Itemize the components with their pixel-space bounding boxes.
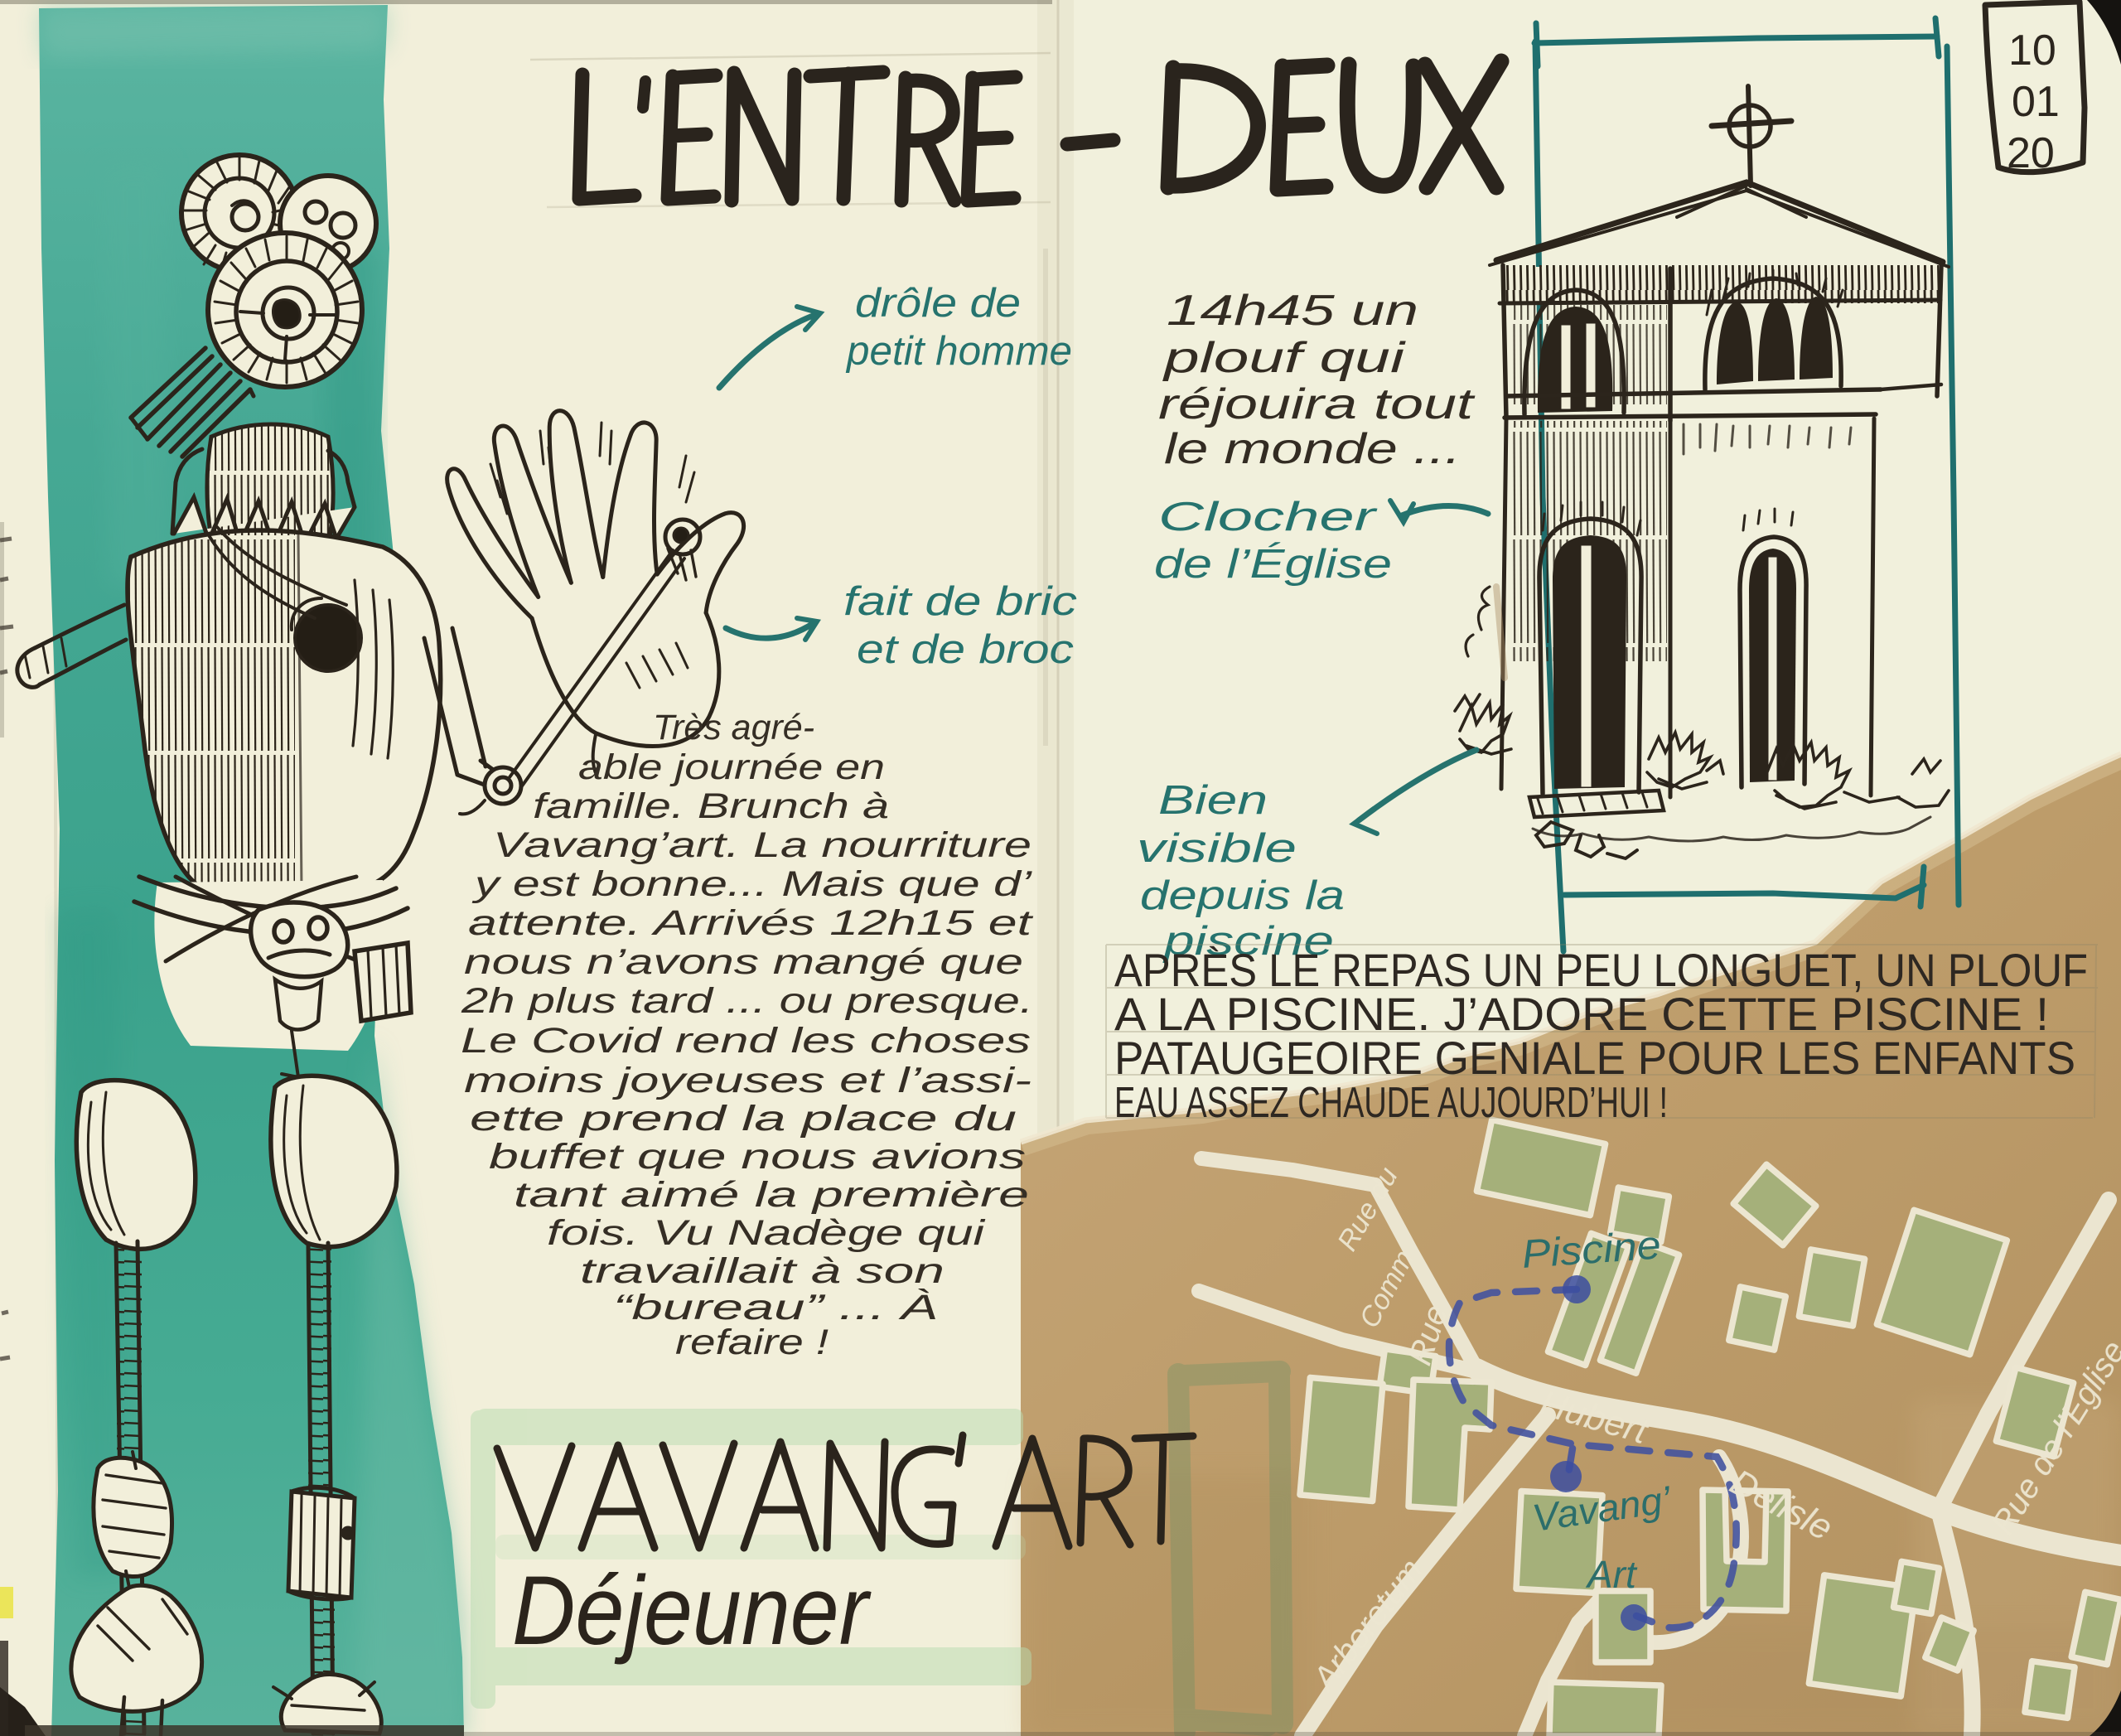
- svg-text:buffet que nous avions: buffet que nous avions: [489, 1137, 1026, 1177]
- svg-text:moins joyeuses et l’assi-: moins joyeuses et l’assi-: [464, 1061, 1032, 1100]
- svg-text:10: 10: [2008, 27, 2056, 75]
- svg-text:nous n’avons mangé que: nous n’avons mangé que: [464, 942, 1023, 982]
- svg-text:20: 20: [2007, 129, 2055, 177]
- svg-text:PATAUGEOIRE GENIALE POUR LES E: PATAUGEOIRE GENIALE POUR LES ENFANTS: [1114, 1032, 2075, 1084]
- svg-text:Déjeuner: Déjeuner: [512, 1556, 872, 1666]
- svg-text:14h45 un: 14h45 un: [1167, 287, 1418, 335]
- svg-text:plouf qui: plouf qui: [1162, 334, 1406, 382]
- svg-text:et de broc: et de broc: [857, 627, 1074, 672]
- svg-text:Vavang’art. La nourriture: Vavang’art. La nourriture: [493, 825, 1032, 865]
- svg-text:attente. Arrivés 12h15 et: attente. Arrivés 12h15 et: [468, 903, 1034, 943]
- svg-text:tant aimé la première: tant aimé la première: [514, 1175, 1029, 1215]
- svg-text:famille. Brunch à: famille. Brunch à: [533, 786, 889, 826]
- svg-text:travaillait à son: travaillait à son: [580, 1251, 945, 1291]
- svg-text:refaire !: refaire !: [675, 1323, 829, 1362]
- svg-text:y est bonne... Mais que d’: y est bonne... Mais que d’: [471, 864, 1033, 904]
- svg-text:petit homme: petit homme: [845, 329, 1072, 374]
- svg-text:fait de bric: fait de bric: [843, 579, 1077, 624]
- svg-text:fois. Vu Nadège qui: fois. Vu Nadège qui: [547, 1213, 986, 1253]
- svg-text:Art: Art: [1585, 1553, 1638, 1596]
- svg-text:visible: visible: [1137, 826, 1297, 871]
- svg-text:Bien: Bien: [1158, 778, 1268, 823]
- svg-text:Très agré-: Très agré-: [653, 708, 814, 747]
- svg-text:le monde ...: le monde ...: [1164, 425, 1461, 473]
- svg-text:depuis la: depuis la: [1140, 873, 1345, 918]
- svg-text:“bureau” ... À: “bureau” ... À: [613, 1288, 938, 1327]
- svg-text:2h plus tard ... ou presque.: 2h plus tard ... ou presque.: [461, 981, 1033, 1021]
- svg-text:01: 01: [2012, 78, 2060, 126]
- svg-text:Le Covid rend les choses: Le Covid rend les choses: [461, 1021, 1031, 1061]
- svg-text:Clocher: Clocher: [1158, 495, 1378, 539]
- svg-text:EAU ASSEZ CHAUDE AUJOURD’HUI !: EAU ASSEZ CHAUDE AUJOURD’HUI !: [1114, 1079, 1668, 1127]
- svg-text:ette prend la place du: ette prend la place du: [470, 1099, 1017, 1139]
- svg-text:drôle de: drôle de: [855, 281, 1021, 326]
- svg-text:de l’Église: de l’Église: [1154, 542, 1392, 587]
- svg-text:able journée en: able journée en: [578, 747, 885, 787]
- svg-text:réjouira tout: réjouira tout: [1158, 380, 1476, 428]
